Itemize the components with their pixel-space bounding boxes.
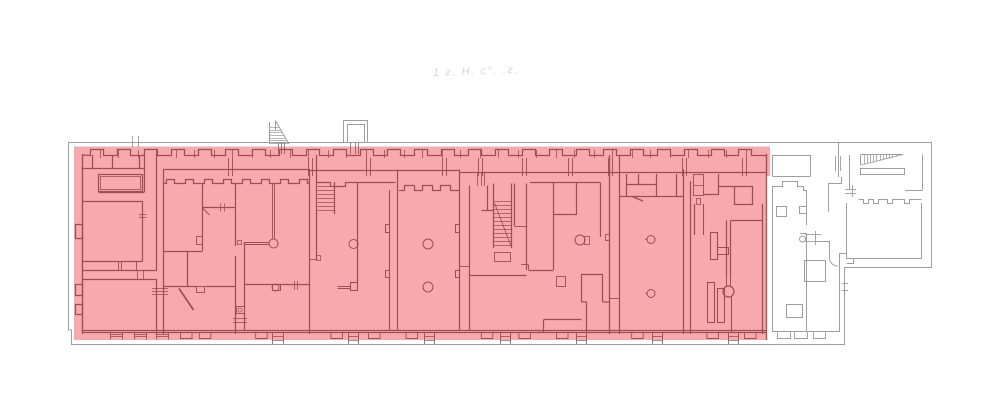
svg-text:1 г. Н. с°. .г.: 1 г. Н. с°. .г. xyxy=(433,64,520,79)
